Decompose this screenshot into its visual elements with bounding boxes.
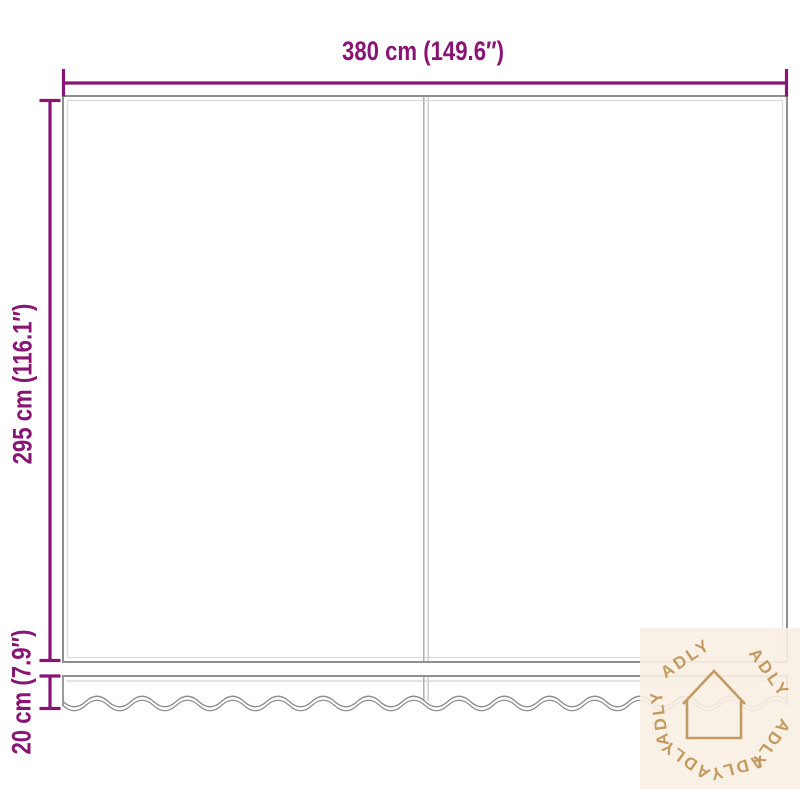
dimension-lines xyxy=(40,69,787,709)
fabric-outer-outline xyxy=(63,96,787,662)
valance-dimension-label: 20 cm (7.9″) xyxy=(9,629,36,754)
fabric-inner-outline xyxy=(68,101,783,658)
width-dimension-label: 380 cm (149.6″) xyxy=(342,38,504,65)
height-dimension-label: 295 cm (116.1″) xyxy=(10,304,37,465)
awning-dimension-diagram: 380 cm (149.6″) 295 cm (116.1″) 20 cm (7… xyxy=(0,0,800,800)
fabric-panel xyxy=(63,96,787,662)
brand-watermark: ADLY ADLY ADLY ADLY ADLY ADLY xyxy=(640,628,800,789)
